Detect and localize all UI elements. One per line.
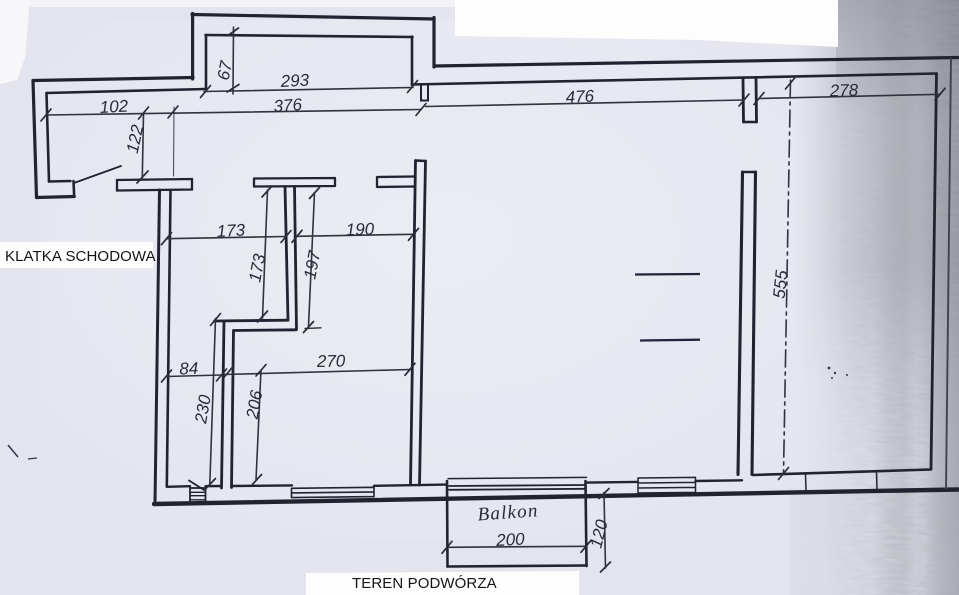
svg-text:376: 376 xyxy=(273,95,303,116)
svg-text:270: 270 xyxy=(316,351,346,371)
svg-text:278: 278 xyxy=(828,81,859,101)
svg-text:173: 173 xyxy=(216,221,246,241)
svg-text:476: 476 xyxy=(565,87,595,107)
svg-text:190: 190 xyxy=(345,220,375,240)
svg-text:TEREN PODWÓRZA: TEREN PODWÓRZA xyxy=(352,575,497,592)
svg-text:293: 293 xyxy=(279,71,310,92)
svg-text:200: 200 xyxy=(495,530,526,551)
svg-text:KLATKA SCHODOWA: KLATKA SCHODOWA xyxy=(5,248,156,265)
svg-text:84: 84 xyxy=(179,359,199,379)
svg-text:102: 102 xyxy=(99,97,129,117)
svg-text:Balkon: Balkon xyxy=(477,500,539,525)
svg-text:555: 555 xyxy=(770,269,792,300)
